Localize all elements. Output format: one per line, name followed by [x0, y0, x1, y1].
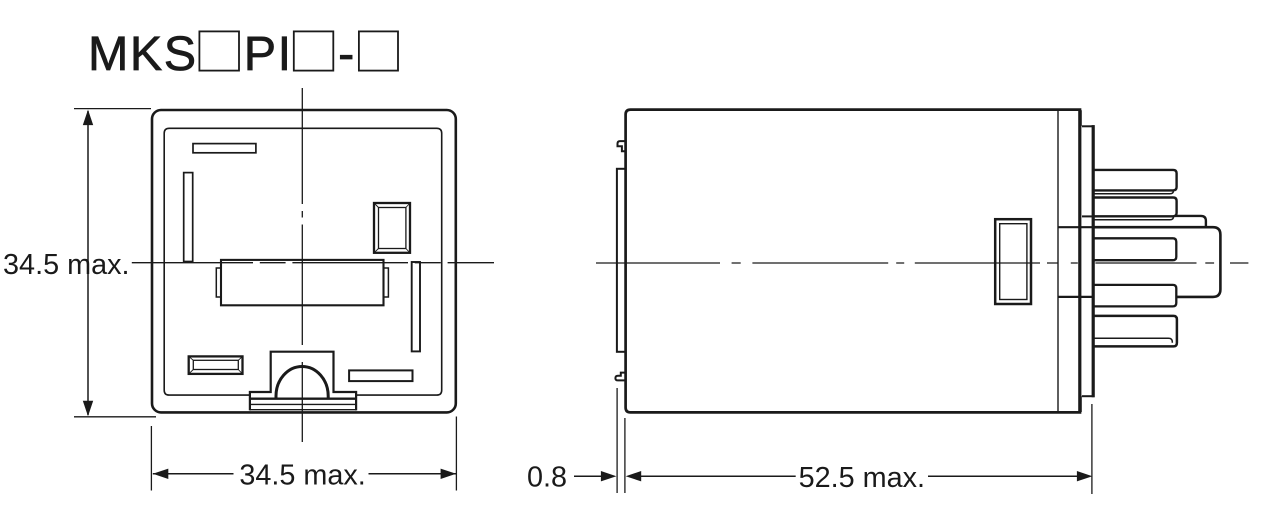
svg-text:-: - [338, 27, 354, 81]
svg-text:34.5 max.: 34.5 max. [3, 249, 129, 281]
svg-text:MKS: MKS [88, 27, 198, 81]
svg-text:34.5 max.: 34.5 max. [239, 459, 365, 491]
svg-text:PI: PI [244, 27, 293, 81]
svg-text:52.5 max.: 52.5 max. [799, 462, 925, 494]
svg-text:0.8: 0.8 [527, 461, 567, 493]
